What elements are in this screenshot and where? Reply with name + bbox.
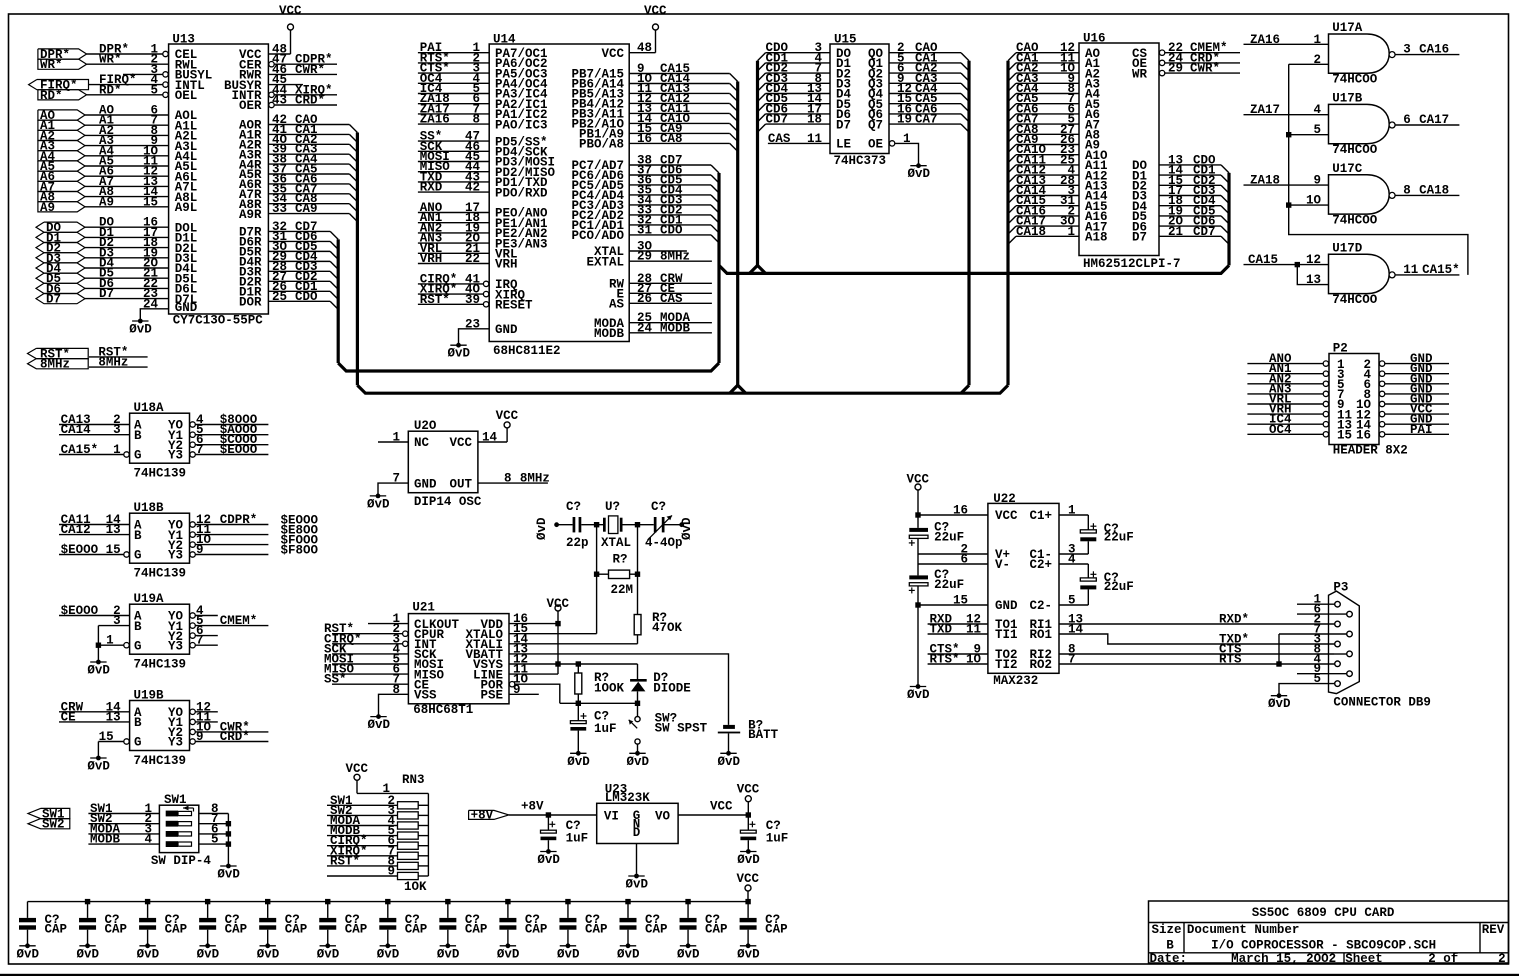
svg-text:Sheet: Sheet — [1345, 952, 1383, 966]
svg-text:21: 21 — [1168, 225, 1183, 239]
svg-text:1uF: 1uF — [566, 832, 589, 846]
svg-text:VCC: VCC — [547, 597, 570, 611]
svg-text:U15: U15 — [834, 32, 857, 46]
svg-text:RTS*: RTS* — [930, 653, 960, 667]
svg-text:SW DIP-4: SW DIP-4 — [151, 854, 212, 868]
svg-text:CAP: CAP — [225, 923, 248, 937]
svg-text:OER: OER — [239, 99, 262, 113]
svg-text:A18: A18 — [1085, 231, 1108, 245]
svg-text:74HCOO: 74HCOO — [1332, 73, 1378, 87]
svg-text:WR*: WR* — [40, 58, 63, 72]
svg-text:MAX232: MAX232 — [993, 674, 1038, 688]
svg-text:VCC: VCC — [737, 872, 760, 886]
svg-text:ZA16: ZA16 — [420, 113, 450, 127]
svg-text:6: 6 — [960, 553, 968, 567]
svg-text:22p: 22p — [566, 536, 589, 550]
svg-text:CAS: CAS — [768, 132, 791, 146]
svg-text:14: 14 — [482, 431, 498, 445]
svg-text:VCC: VCC — [907, 473, 930, 487]
svg-text:7: 7 — [1068, 653, 1076, 667]
svg-text:CAP: CAP — [765, 923, 788, 937]
svg-text:U18B: U18B — [134, 501, 165, 515]
svg-text:U19B: U19B — [134, 688, 165, 702]
svg-text:OUT: OUT — [449, 477, 472, 491]
svg-text:SS*: SS* — [324, 673, 347, 687]
svg-text:ØvD: ØvD — [535, 517, 549, 540]
svg-text:22M: 22M — [611, 583, 634, 597]
svg-text:ØvD: ØvD — [17, 947, 40, 961]
svg-text:ØvD: ØvD — [217, 868, 240, 882]
svg-text:OEL: OEL — [175, 89, 198, 103]
svg-text:47OK: 47OK — [652, 621, 683, 635]
svg-text:ØvD: ØvD — [497, 947, 520, 961]
svg-text:Y3: Y3 — [168, 549, 183, 563]
svg-text:1OOK: 1OOK — [594, 682, 625, 696]
svg-text:8: 8 — [1313, 642, 1321, 656]
svg-text:ØvD: ØvD — [737, 947, 760, 961]
svg-text:A9: A9 — [40, 201, 55, 215]
svg-text:5: 5 — [211, 833, 219, 847]
svg-text:CAP: CAP — [405, 923, 428, 937]
svg-text:GND: GND — [414, 477, 437, 491]
svg-text:Q7: Q7 — [868, 118, 883, 132]
svg-text:74HC139: 74HC139 — [134, 658, 187, 672]
svg-text:RESET: RESET — [495, 299, 533, 313]
svg-text:CAP: CAP — [645, 923, 668, 937]
svg-text:R?: R? — [613, 552, 628, 566]
svg-text:CA15*: CA15* — [1422, 263, 1460, 277]
svg-text:C?: C? — [566, 500, 581, 514]
svg-text:1OK: 1OK — [404, 880, 427, 894]
svg-text:DIP14 OSC: DIP14 OSC — [414, 495, 482, 509]
svg-text:I/O COPROCESSOR - SBCO9COP.SCH: I/O COPROCESSOR - SBCO9COP.SCH — [1211, 939, 1436, 953]
svg-text:6: 6 — [1403, 113, 1411, 127]
svg-text:1: 1 — [392, 431, 400, 445]
svg-text:PDO/RXD: PDO/RXD — [495, 186, 548, 200]
svg-text:CD7: CD7 — [1193, 225, 1216, 239]
svg-text:8: 8 — [504, 472, 512, 486]
svg-text:A9R: A9R — [239, 208, 262, 222]
svg-text:RN3: RN3 — [402, 773, 425, 787]
svg-text:D7: D7 — [46, 293, 61, 307]
svg-text:ØvD: ØvD — [677, 947, 700, 961]
svg-text:ØvD: ØvD — [626, 878, 649, 892]
svg-text:ØvD: ØvD — [87, 664, 110, 678]
svg-text:CAP: CAP — [585, 923, 608, 937]
svg-text:P2: P2 — [1333, 342, 1348, 356]
svg-text:CA9: CA9 — [295, 202, 318, 216]
svg-text:11: 11 — [1403, 263, 1418, 277]
svg-text:CWR*: CWR* — [1190, 62, 1220, 76]
svg-text:8: 8 — [1403, 184, 1411, 198]
svg-text:B: B — [134, 620, 142, 634]
svg-text:TXD: TXD — [930, 623, 953, 637]
svg-text:8MHz: 8MHz — [660, 250, 690, 264]
svg-text:CDPR*: CDPR* — [220, 513, 258, 527]
svg-text:VCC: VCC — [737, 783, 760, 797]
svg-text:VCC: VCC — [710, 800, 733, 814]
svg-text:74HCOO: 74HCOO — [1332, 143, 1378, 157]
svg-text:VO: VO — [655, 810, 671, 824]
svg-text:ØvD: ØvD — [617, 947, 640, 961]
svg-text:CDO: CDO — [660, 223, 683, 237]
svg-text:MODB: MODB — [660, 321, 691, 335]
svg-text:ØvD: ØvD — [377, 947, 400, 961]
svg-text:HM62512CLPI-7: HM62512CLPI-7 — [1083, 257, 1181, 271]
svg-text:11: 11 — [966, 623, 981, 637]
svg-text:SW2: SW2 — [42, 818, 65, 832]
svg-text:$EOOO: $EOOO — [220, 443, 258, 457]
svg-text:CMEM*: CMEM* — [220, 614, 258, 628]
svg-text:68HC811E2: 68HC811E2 — [493, 344, 561, 358]
svg-text:+8V: +8V — [471, 808, 494, 822]
svg-text:CA16: CA16 — [1419, 43, 1449, 57]
svg-text:A9: A9 — [99, 195, 114, 209]
svg-text:VCC: VCC — [496, 409, 519, 423]
svg-text:+8V: +8V — [521, 800, 544, 814]
svg-text:TI1: TI1 — [995, 628, 1018, 642]
svg-text:C1+: C1+ — [1029, 509, 1052, 523]
svg-text:ØvD: ØvD — [137, 947, 160, 961]
svg-text:VCC: VCC — [644, 4, 667, 18]
svg-text:ØvD: ØvD — [448, 347, 471, 361]
svg-text:$EOOO: $EOOO — [61, 543, 99, 557]
svg-text:CA18: CA18 — [1419, 184, 1449, 198]
svg-text:U19A: U19A — [134, 592, 165, 606]
svg-text:U22: U22 — [993, 492, 1016, 506]
svg-text:15: 15 — [99, 730, 114, 744]
svg-text:1: 1 — [106, 634, 114, 648]
svg-text:U13: U13 — [172, 32, 195, 46]
svg-text:ØvD: ØvD — [567, 755, 590, 769]
svg-text:VI: VI — [604, 810, 619, 824]
svg-text:VCC: VCC — [449, 436, 472, 450]
svg-text:HEADER 8X2: HEADER 8X2 — [1333, 443, 1408, 457]
svg-text:U?: U? — [605, 500, 620, 514]
svg-text:BATT: BATT — [748, 728, 779, 742]
svg-text:$EOOO: $EOOO — [61, 604, 99, 618]
svg-text:7: 7 — [196, 443, 204, 457]
svg-text:22uF: 22uF — [1104, 580, 1134, 594]
svg-text:U17C: U17C — [1332, 162, 1363, 176]
svg-text:SW1: SW1 — [164, 793, 187, 807]
svg-text:9: 9 — [196, 543, 204, 557]
svg-text:CAP: CAP — [105, 923, 128, 937]
svg-text:1uF: 1uF — [594, 722, 617, 736]
svg-text:CA14: CA14 — [61, 423, 92, 437]
svg-text:ØvD: ØvD — [907, 688, 930, 702]
svg-text:ØvD: ØvD — [557, 947, 580, 961]
svg-text:LM323K: LM323K — [605, 791, 651, 805]
svg-text:B: B — [134, 429, 142, 443]
svg-text:AS: AS — [609, 298, 625, 312]
svg-text:MODB: MODB — [594, 327, 625, 341]
svg-text:CY7C13O-55PC: CY7C13O-55PC — [173, 314, 264, 328]
svg-text:74HC373: 74HC373 — [834, 154, 887, 168]
svg-text:RXD*: RXD* — [1219, 613, 1249, 627]
svg-text:ØvD: ØvD — [317, 947, 340, 961]
svg-text:V-: V- — [995, 558, 1010, 572]
svg-text:Document Number: Document Number — [1187, 923, 1300, 937]
svg-text:VRH: VRH — [495, 258, 518, 272]
svg-text:CAP: CAP — [525, 923, 548, 937]
svg-text:1: 1 — [903, 132, 911, 146]
svg-text:DIODE: DIODE — [653, 682, 691, 696]
svg-text:DOR: DOR — [239, 296, 262, 310]
svg-text:SW SPST: SW SPST — [655, 722, 708, 736]
svg-text:22uF: 22uF — [934, 578, 964, 592]
svg-text:U17A: U17A — [1332, 21, 1363, 35]
svg-text:ØvD: ØvD — [627, 755, 650, 769]
svg-text:REV: REV — [1482, 923, 1505, 937]
svg-text:D7: D7 — [836, 118, 851, 132]
svg-text:8MHz: 8MHz — [520, 472, 550, 486]
svg-text:ØvD: ØvD — [77, 947, 100, 961]
svg-text:G: G — [134, 736, 142, 750]
svg-text:RST*: RST* — [330, 854, 360, 868]
svg-text:RTS: RTS — [1219, 653, 1242, 667]
svg-text:PSE: PSE — [480, 689, 503, 703]
svg-text:7: 7 — [392, 472, 400, 486]
svg-text:16: 16 — [1356, 429, 1371, 443]
svg-text:March 15, 2OO2: March 15, 2OO2 — [1231, 952, 1336, 966]
svg-text:CAS: CAS — [660, 292, 683, 306]
svg-text:A9L: A9L — [175, 201, 198, 215]
svg-text:U16: U16 — [1083, 32, 1106, 46]
svg-text:74HC139: 74HC139 — [134, 754, 187, 768]
svg-text:15: 15 — [1337, 429, 1352, 443]
svg-text:U17B: U17B — [1332, 92, 1363, 106]
svg-text:Y3: Y3 — [168, 736, 183, 750]
svg-text:29: 29 — [1168, 62, 1183, 76]
svg-text:XTAL: XTAL — [601, 536, 631, 550]
svg-text:WR*: WR* — [99, 53, 122, 67]
svg-text:VRH: VRH — [420, 252, 443, 266]
svg-text:VSS: VSS — [414, 689, 437, 703]
svg-text:B: B — [134, 716, 142, 730]
svg-text:VCC: VCC — [995, 509, 1018, 523]
svg-text:U18A: U18A — [134, 401, 165, 415]
svg-text:9: 9 — [387, 865, 395, 879]
svg-text:22uF: 22uF — [1104, 531, 1134, 545]
svg-text:ØvD: ØvD — [1268, 697, 1291, 711]
svg-text:C?: C? — [651, 500, 666, 514]
svg-text:Size: Size — [1152, 923, 1182, 937]
svg-text:U21: U21 — [412, 601, 435, 615]
svg-text:B: B — [134, 529, 142, 543]
svg-text:4-4Op: 4-4Op — [645, 536, 683, 550]
svg-text:NC: NC — [414, 436, 430, 450]
svg-text:8MHz: 8MHz — [98, 356, 128, 370]
svg-text:CA7: CA7 — [915, 113, 938, 127]
svg-text:1O: 1O — [966, 653, 982, 667]
svg-text:CD7: CD7 — [766, 113, 789, 127]
svg-text:3: 3 — [1403, 43, 1411, 57]
svg-text:CA17: CA17 — [1419, 113, 1449, 127]
svg-text:CA18: CA18 — [1016, 225, 1046, 239]
svg-text:ØvD: ØvD — [197, 947, 220, 961]
svg-text:CAP: CAP — [465, 923, 488, 937]
svg-text:CRD*: CRD* — [220, 730, 250, 744]
svg-text:C2-: C2- — [1029, 599, 1052, 613]
svg-text:D7: D7 — [1132, 231, 1147, 245]
svg-text:D: D — [633, 826, 641, 840]
svg-text:8MHz: 8MHz — [40, 358, 70, 372]
svg-text:$F8OO: $F8OO — [281, 544, 319, 558]
svg-text:RXD: RXD — [420, 181, 443, 195]
svg-text:CAP: CAP — [285, 923, 308, 937]
svg-text:U17D: U17D — [1332, 242, 1363, 256]
svg-text:ØvD: ØvD — [367, 497, 390, 511]
svg-text:ØvD: ØvD — [680, 517, 694, 540]
svg-text:ØvD: ØvD — [368, 718, 391, 732]
svg-text:GND: GND — [175, 301, 198, 315]
svg-text:CA15*: CA15* — [61, 443, 99, 457]
svg-text:PAO/IC3: PAO/IC3 — [495, 118, 548, 132]
svg-text:WR: WR — [1132, 67, 1148, 81]
svg-text:OE: OE — [868, 138, 883, 152]
svg-text:7: 7 — [196, 634, 204, 648]
svg-text:GND: GND — [995, 599, 1018, 613]
svg-text:RO1: RO1 — [1029, 628, 1052, 642]
svg-text:Y3: Y3 — [168, 449, 183, 463]
svg-text:CAP: CAP — [165, 923, 188, 937]
svg-text:5: 5 — [1068, 594, 1076, 608]
svg-text:PBO/A8: PBO/A8 — [579, 138, 624, 152]
svg-text:1: 1 — [1068, 504, 1076, 518]
svg-text:ØvD: ØvD — [737, 853, 760, 867]
svg-text:68HC68T1: 68HC68T1 — [413, 703, 473, 717]
svg-text:VCC: VCC — [601, 47, 624, 61]
svg-text:C2+: C2+ — [1029, 558, 1052, 572]
svg-text:RST*: RST* — [420, 293, 450, 307]
svg-text:TI2: TI2 — [995, 658, 1018, 672]
svg-text:ØvD: ØvD — [537, 853, 560, 867]
svg-text:2 of: 2 of — [1428, 952, 1458, 966]
svg-text:ØvD: ØvD — [129, 323, 152, 337]
svg-text:1uF: 1uF — [766, 832, 789, 846]
svg-text:G: G — [134, 549, 142, 563]
svg-text:ØvD: ØvD — [257, 947, 280, 961]
svg-text:14: 14 — [1068, 623, 1084, 637]
svg-text:Y3: Y3 — [168, 639, 183, 653]
svg-text:VCC: VCC — [279, 4, 302, 18]
svg-text:MODB: MODB — [90, 833, 121, 847]
svg-text:U2O: U2O — [414, 419, 437, 433]
svg-text:ØvD: ØvD — [908, 167, 931, 181]
svg-text:B: B — [1166, 939, 1174, 953]
svg-text:G: G — [134, 449, 142, 463]
svg-text:74HC139: 74HC139 — [134, 567, 187, 581]
svg-text:4: 4 — [1068, 553, 1076, 567]
svg-text:U14: U14 — [493, 32, 516, 46]
svg-text:2: 2 — [1498, 952, 1506, 966]
svg-text:Date:: Date: — [1150, 952, 1188, 966]
svg-text:OC4: OC4 — [1269, 423, 1292, 437]
svg-text:74HC139: 74HC139 — [134, 467, 187, 481]
svg-text:RD*: RD* — [99, 83, 122, 97]
svg-text:G: G — [134, 639, 142, 653]
svg-text:ØvD: ØvD — [87, 760, 110, 774]
svg-text:CRD*: CRD* — [295, 94, 325, 108]
svg-text:9: 9 — [196, 730, 204, 744]
svg-text:RO2: RO2 — [1029, 658, 1052, 672]
svg-text:CA8: CA8 — [660, 132, 683, 146]
svg-text:CA12: CA12 — [61, 523, 91, 537]
svg-text:CAP: CAP — [45, 923, 68, 937]
svg-text:CWR*: CWR* — [295, 63, 325, 77]
svg-text:VCC: VCC — [346, 762, 369, 776]
svg-text:EXTAL: EXTAL — [586, 255, 624, 269]
svg-text:D7: D7 — [99, 287, 114, 301]
svg-text:GND: GND — [495, 323, 518, 337]
svg-text:LE: LE — [836, 138, 851, 152]
svg-text:CONNECTOR DB9: CONNECTOR DB9 — [1333, 695, 1431, 709]
svg-text:74HCOO: 74HCOO — [1332, 213, 1378, 227]
svg-text:CAP: CAP — [345, 923, 368, 937]
svg-text:4: 4 — [144, 833, 152, 847]
svg-text:16: 16 — [953, 504, 968, 518]
svg-text:SS5OC 68O9 CPU CARD: SS5OC 68O9 CPU CARD — [1252, 906, 1395, 920]
svg-text:15: 15 — [953, 594, 968, 608]
svg-text:CDO: CDO — [295, 290, 318, 304]
svg-text:CE: CE — [61, 710, 76, 724]
svg-text:P3: P3 — [1333, 580, 1348, 594]
svg-text:CAP: CAP — [705, 923, 728, 937]
svg-text:RD*: RD* — [40, 89, 63, 103]
svg-text:PCO/ADO: PCO/ADO — [571, 229, 624, 243]
svg-text:PAI: PAI — [1410, 423, 1433, 437]
svg-text:74HCOO: 74HCOO — [1332, 293, 1378, 307]
svg-text:ØvD: ØvD — [437, 947, 460, 961]
svg-text:ØvD: ØvD — [718, 755, 741, 769]
